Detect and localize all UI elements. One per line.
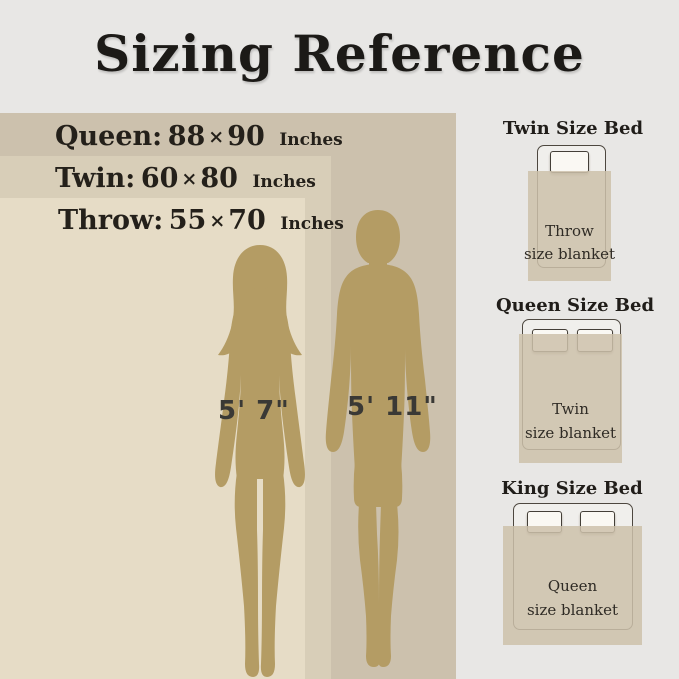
bed-title: Queen Size Bed: [496, 295, 646, 316]
blanket-size-name: Twin: [552, 398, 589, 421]
size-height: 70: [228, 205, 266, 236]
size-label: Throw:: [58, 205, 163, 236]
size-width: 55: [169, 205, 207, 236]
size-unit: Inches: [252, 172, 315, 192]
multiply-symbol: ×: [181, 168, 197, 190]
size-width: 88: [168, 121, 206, 152]
twin-bed-diagram: Twin Size Bed Throw size blanket: [498, 118, 648, 288]
blanket-size-name: Throw: [545, 220, 594, 243]
blanket-overlay: Queen size blanket: [503, 526, 642, 645]
blanket-size-name: Queen: [548, 575, 597, 598]
king-bed-diagram: King Size Bed Queen size blanket: [497, 478, 647, 658]
bed-title: Twin Size Bed: [498, 118, 648, 139]
size-label: Queen:: [55, 121, 162, 152]
man-silhouette-icon: [313, 206, 443, 672]
size-height: 90: [227, 121, 265, 152]
size-unit: Inches: [279, 130, 342, 150]
blanket-size-suffix: size blanket: [527, 599, 618, 622]
woman-height-label: 5' 7": [218, 396, 290, 426]
blanket-overlay: Twin size blanket: [519, 334, 622, 463]
size-width: 60: [141, 163, 179, 194]
pillow-icon: [550, 151, 589, 173]
queen-bed-diagram: Queen Size Bed Twin size blanket: [496, 295, 646, 473]
size-label: Twin:: [55, 163, 135, 194]
size-row-queen: Queen: 88×90 Inches: [55, 121, 343, 152]
blanket-size-suffix: size blanket: [525, 422, 616, 445]
man-height-label: 5' 11": [347, 392, 438, 422]
multiply-symbol: ×: [208, 126, 224, 148]
size-row-twin: Twin: 60×80 Inches: [55, 163, 316, 194]
multiply-symbol: ×: [209, 210, 225, 232]
page-title: Sizing Reference: [0, 24, 679, 83]
sizing-reference-infographic: Sizing Reference Queen: 88×90 Inches Twi…: [0, 0, 679, 679]
woman-silhouette-icon: [200, 242, 320, 679]
size-height: 80: [200, 163, 238, 194]
size-row-throw: Throw: 55×70 Inches: [58, 205, 344, 236]
blanket-size-suffix: size blanket: [524, 243, 615, 266]
bed-title: King Size Bed: [497, 478, 647, 499]
blanket-overlay: Throw size blanket: [528, 171, 611, 281]
